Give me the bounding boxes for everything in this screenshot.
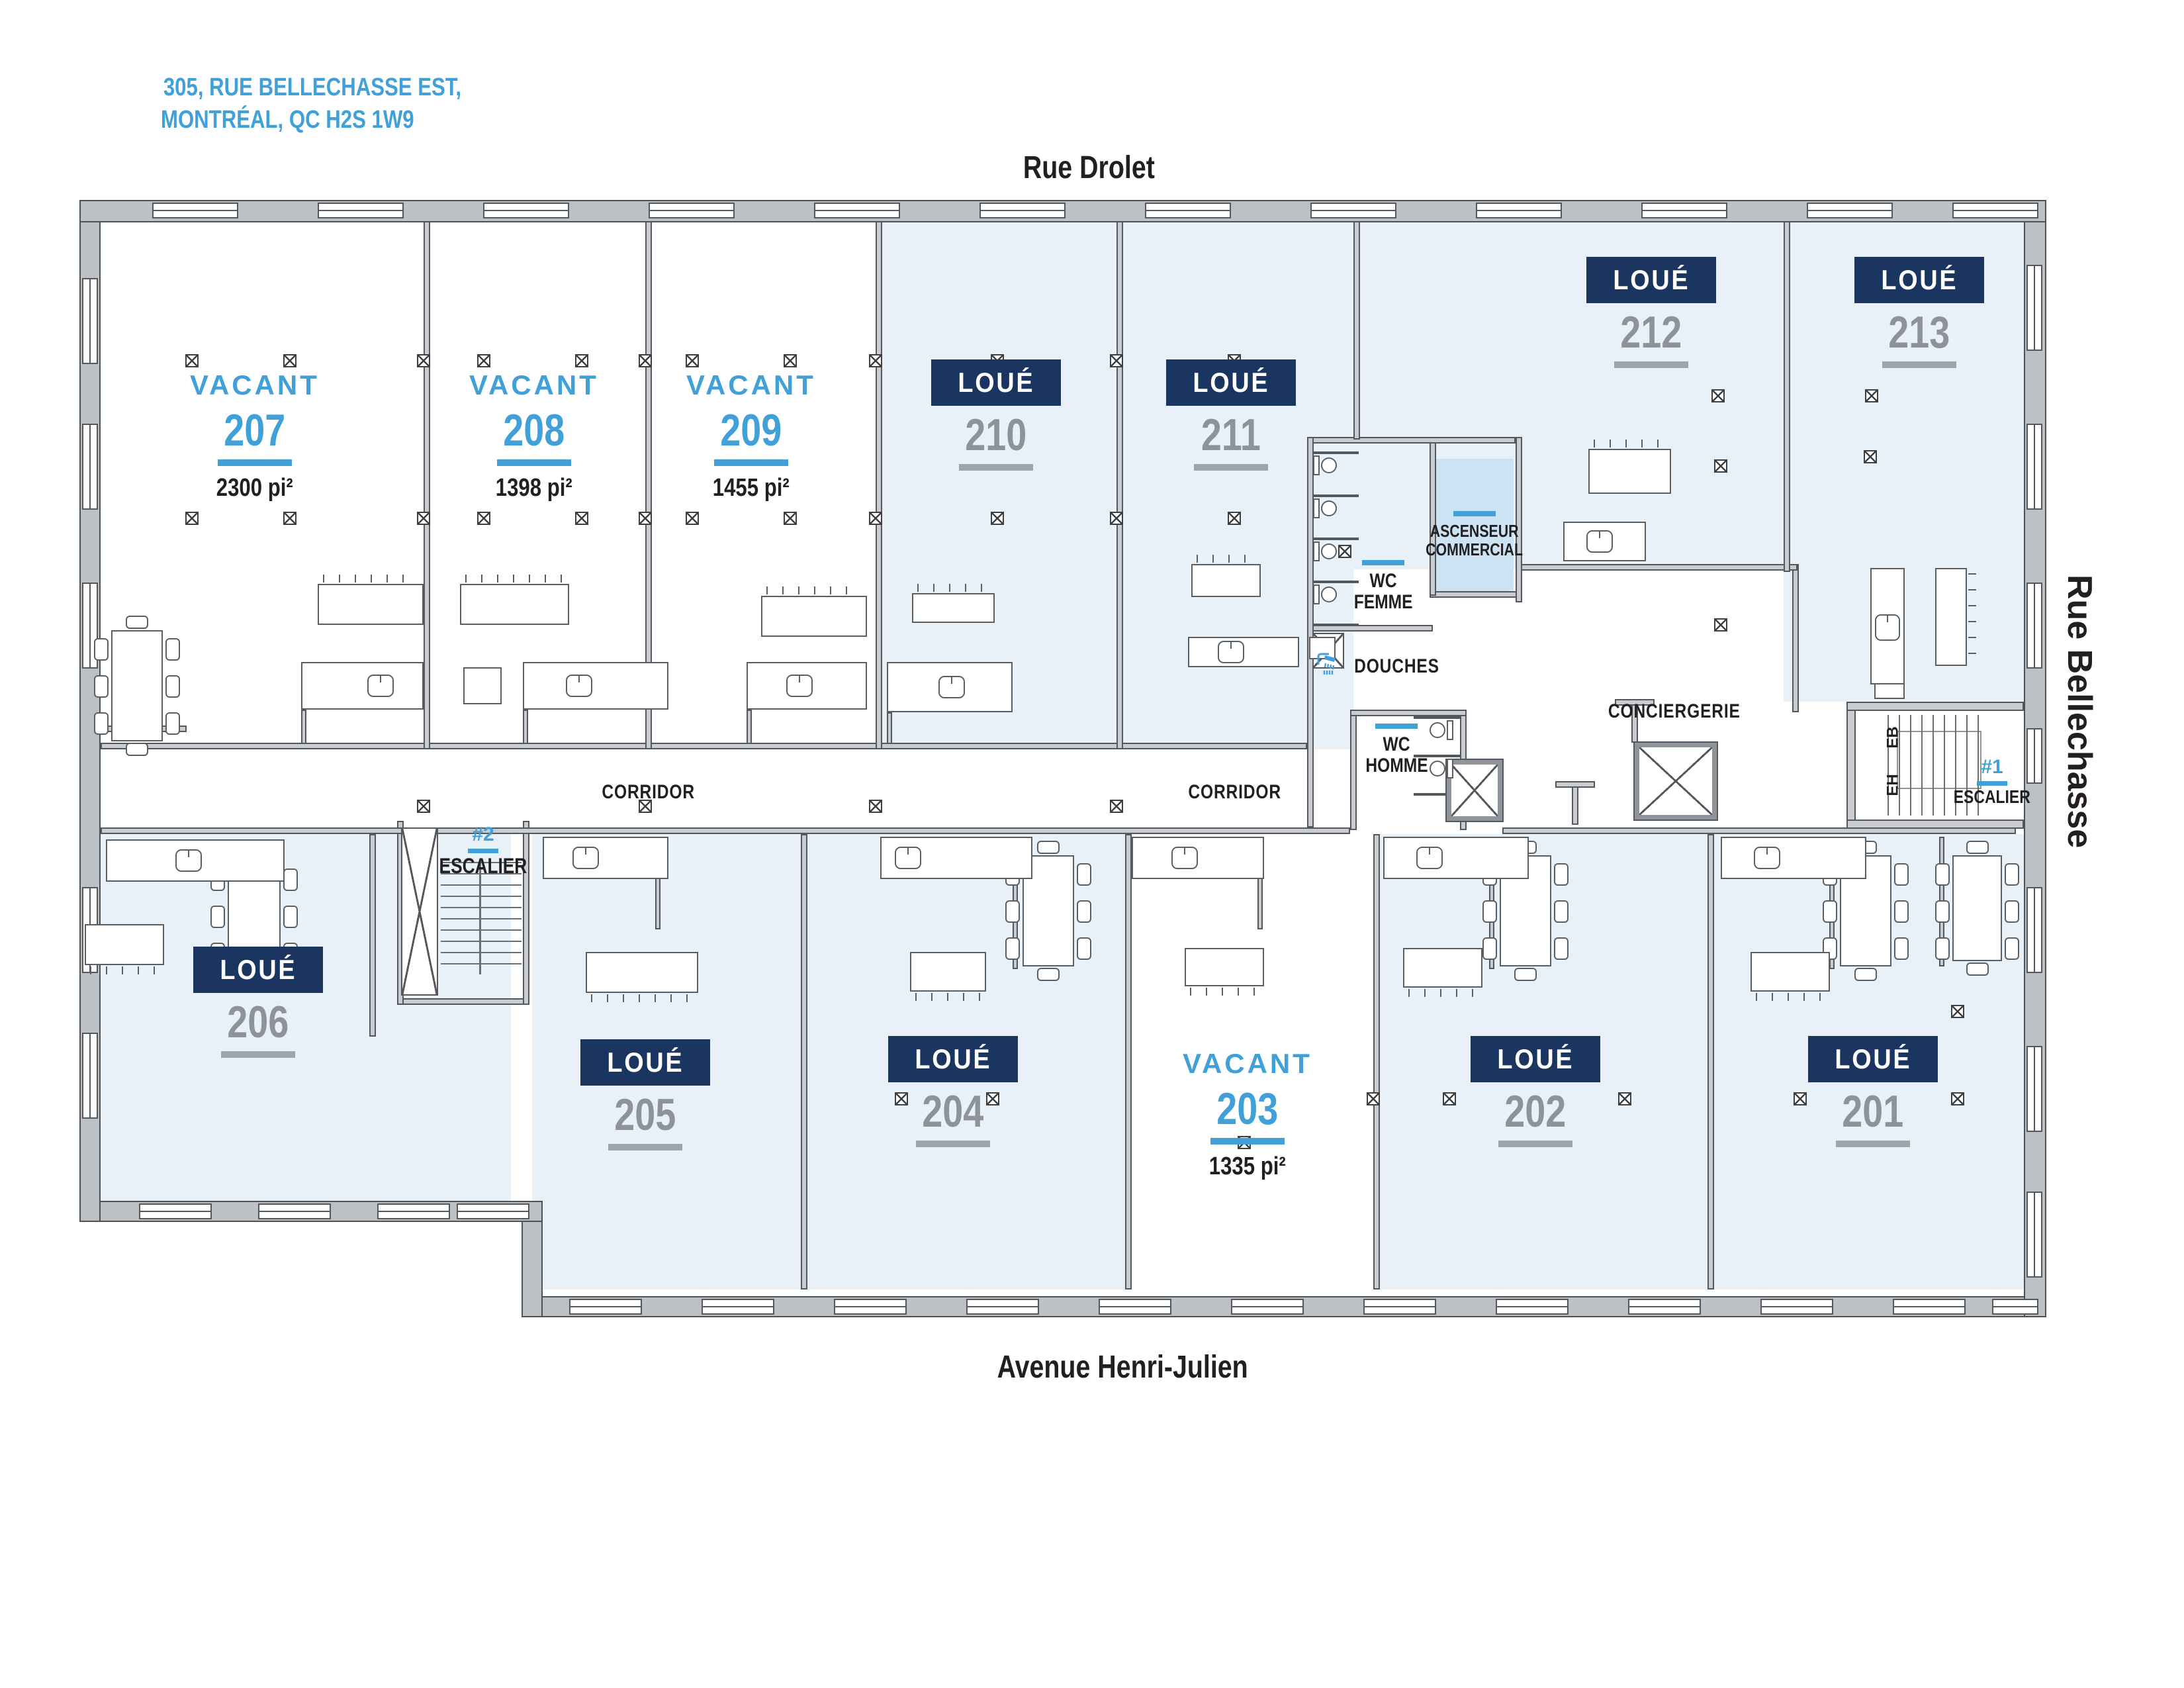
- unit-205-status-badge: LOUÉ: [580, 1039, 711, 1086]
- chair: [126, 616, 148, 629]
- kitchen-sink: [1171, 847, 1198, 869]
- unit-210-status-badge: LOUÉ: [931, 359, 1062, 406]
- window: [139, 1203, 212, 1219]
- interior-wall: [876, 221, 882, 749]
- island-stool-ticks: [1756, 993, 1825, 1001]
- chair: [94, 712, 109, 735]
- window: [483, 203, 569, 218]
- island-stool-ticks: [465, 575, 564, 583]
- kitchen-sink: [895, 847, 921, 869]
- window: [649, 203, 735, 218]
- island-stool-ticks: [915, 993, 981, 1001]
- unit-213-status-badge: LOUÉ: [1854, 257, 1985, 303]
- kitchen-counter: [523, 662, 668, 710]
- chair: [1894, 900, 1909, 923]
- chair: [1935, 900, 1950, 923]
- unit-208-underline: [497, 459, 571, 466]
- chair: [165, 675, 180, 698]
- unit-208-number: 208: [503, 408, 565, 453]
- kitchen-island: [460, 584, 569, 625]
- window: [979, 203, 1066, 218]
- wc-homme-label: WC HOMME: [1337, 724, 1456, 777]
- unit-label-202: LOUÉ 202: [1416, 1036, 1655, 1147]
- window: [82, 424, 98, 510]
- kitchen-sink: [566, 675, 592, 697]
- window: [814, 203, 900, 218]
- window: [1893, 1299, 1966, 1315]
- interior-wall: [397, 998, 529, 1005]
- window: [2026, 1046, 2042, 1132]
- window: [2026, 424, 2042, 510]
- unit-203-area: 1335 pi²: [1209, 1152, 1286, 1181]
- address-line2: MONTRÉAL, QC H2S 1W9: [161, 104, 414, 136]
- kitchen-sink: [1218, 641, 1244, 663]
- interior-wall: [1784, 221, 1790, 572]
- kitchen-island: [1588, 449, 1671, 494]
- window: [1760, 1299, 1833, 1315]
- chair: [1854, 968, 1877, 981]
- escalier-2-label: #2 ESCALIER: [424, 823, 543, 878]
- chair: [2005, 863, 2019, 886]
- unit-213-underline: [1882, 361, 1956, 368]
- window: [834, 1299, 907, 1315]
- unit-209-underline: [714, 459, 788, 466]
- window: [1641, 203, 1727, 218]
- freight-elevator: [1635, 743, 1717, 820]
- interior-wall: [1846, 702, 1856, 829]
- stair-2-treads: [441, 862, 522, 974]
- kitchen-island: [910, 952, 986, 992]
- unit-212-number: 212: [1620, 310, 1682, 355]
- window: [1952, 203, 2038, 218]
- chair: [1894, 863, 1909, 886]
- column-marker: [686, 512, 699, 525]
- escalier-1-label: #1 ESCALIER: [1936, 756, 2048, 807]
- unit-213-number: 213: [1888, 310, 1950, 355]
- chair: [2005, 900, 2019, 923]
- chair: [1077, 937, 1091, 960]
- interior-wall: [887, 712, 892, 747]
- column-marker: [1711, 389, 1725, 402]
- toilet: [1313, 541, 1338, 561]
- window: [966, 1299, 1039, 1315]
- unit-label-213: LOUÉ 213: [1800, 257, 2038, 368]
- ibeam-web: [1572, 786, 1578, 825]
- unit-207-area: 2300 pi²: [216, 474, 293, 502]
- window: [1628, 1299, 1701, 1315]
- column-marker: [283, 354, 296, 367]
- property-address: 305, RUE BELLECHASSE EST, MONTRÉAL, QC H…: [98, 71, 414, 137]
- chair: [1554, 937, 1569, 960]
- unit-205-number: 205: [614, 1092, 676, 1137]
- island-stool-ticks: [766, 586, 862, 594]
- window: [152, 203, 238, 218]
- column-marker: [1714, 459, 1727, 473]
- unit-204-number: 204: [922, 1089, 983, 1134]
- interior-wall: [1353, 221, 1360, 440]
- kitchen-island: [1751, 952, 1830, 992]
- kitchen-sink: [572, 847, 599, 869]
- chair: [1935, 937, 1950, 960]
- chair: [210, 906, 225, 928]
- unit-label-201: LOUÉ 201: [1754, 1036, 1992, 1147]
- kitchen-island: [1935, 568, 1967, 666]
- wc-femme-accent-bar: [1362, 560, 1404, 565]
- chair: [1894, 937, 1909, 960]
- island-stool-ticks: [1408, 989, 1477, 997]
- interior-wall: [523, 710, 528, 747]
- shower-icon: [1316, 651, 1342, 677]
- chair: [1554, 900, 1569, 923]
- interior-wall: [1502, 827, 2016, 834]
- column-marker: [417, 354, 430, 367]
- column-marker: [1367, 1092, 1380, 1105]
- window: [82, 278, 98, 364]
- ibeam-column: [1555, 781, 1595, 825]
- chair: [1077, 863, 1091, 886]
- chair: [126, 743, 148, 756]
- window: [1231, 1299, 1304, 1315]
- toilet-tank: [1313, 498, 1320, 518]
- chair: [1514, 968, 1537, 981]
- unit-206-status-badge: LOUÉ: [193, 947, 324, 993]
- unit-205-underline: [608, 1144, 682, 1150]
- address-line1: 305, RUE BELLECHASSE EST,: [163, 71, 461, 104]
- kitchen-sink: [938, 676, 965, 698]
- island-stool-ticks: [917, 584, 989, 592]
- unit-206-underline: [221, 1051, 295, 1058]
- column-marker: [991, 512, 1004, 525]
- window: [1145, 203, 1231, 218]
- island-stool-ticks: [1197, 555, 1255, 563]
- chair: [1005, 937, 1020, 960]
- column-marker: [869, 800, 882, 813]
- douches-label: DOUCHES: [1345, 655, 1449, 678]
- toilet-tank: [1313, 585, 1320, 604]
- unit-208-area: 1398 pi²: [496, 474, 572, 502]
- chair: [1554, 863, 1569, 886]
- interior-wall: [1350, 710, 1467, 716]
- column-marker: [417, 800, 430, 813]
- unit-206-number: 206: [227, 1000, 289, 1045]
- interior-wall: [1516, 564, 1797, 571]
- column-marker: [1864, 450, 1877, 463]
- corridor-label-right: CORRIDOR: [1116, 781, 1354, 804]
- stair-eh-label: EH: [1884, 774, 1903, 796]
- kitchen-island: [1403, 948, 1482, 988]
- column-marker: [185, 512, 199, 525]
- stair-eb-label: EB: [1884, 726, 1903, 748]
- chair: [2005, 937, 2019, 960]
- island-stool-ticks: [323, 575, 418, 583]
- unit-203-status: VACANT: [1128, 1048, 1367, 1080]
- kitchen-counter: [301, 662, 424, 710]
- interior-wall: [301, 710, 306, 747]
- chair: [1037, 841, 1060, 854]
- toilet-bowl: [1321, 500, 1337, 516]
- interior-wall: [1373, 834, 1380, 1289]
- chair: [1935, 863, 1950, 886]
- toilet: [1313, 498, 1338, 518]
- unit-212-status-badge: LOUÉ: [1586, 257, 1717, 303]
- kitchen-sink: [786, 675, 813, 697]
- window: [1099, 1299, 1171, 1315]
- ascenseur-accent-bar: [1453, 511, 1496, 516]
- window: [258, 1203, 331, 1219]
- chair: [1005, 900, 1020, 923]
- kitchen-counter: [1721, 837, 1866, 879]
- kitchen-sink: [1754, 847, 1780, 869]
- unit-209-area: 1455 pi²: [713, 474, 790, 502]
- kitchen-island: [761, 596, 867, 637]
- interior-wall: [101, 743, 1307, 749]
- island-stool-ticks: [1190, 988, 1259, 996]
- kitchen-island: [1185, 948, 1264, 986]
- wc-femme-label: WC FEMME: [1324, 560, 1443, 614]
- column-marker: [1865, 389, 1878, 402]
- column-marker: [1228, 512, 1241, 525]
- dining-table: [1952, 855, 2002, 961]
- appliance-box: [463, 667, 502, 704]
- window: [2026, 887, 2042, 973]
- column-marker: [477, 354, 490, 367]
- unit-212-underline: [1614, 361, 1688, 368]
- unit-210-number: 210: [965, 412, 1026, 457]
- ascenseur-commercial-label: ASCENSEUR COMMERCIAL: [1415, 511, 1534, 559]
- island-stool-ticks: [1594, 440, 1666, 447]
- chair: [165, 638, 180, 661]
- unit-label-208: VACANT 208 1398 pi²: [415, 369, 653, 502]
- window: [2026, 583, 2042, 669]
- unit-207-number: 207: [224, 408, 285, 453]
- window: [1476, 203, 1562, 218]
- kitchen-sink: [175, 849, 202, 872]
- wc-homme-accent-bar: [1375, 724, 1418, 729]
- kitchen-island: [586, 952, 698, 993]
- unit-203-number: 203: [1216, 1086, 1278, 1131]
- window: [1807, 203, 1893, 218]
- chair: [1077, 900, 1091, 923]
- street-label-bottom: Avenue Henri-Julien: [970, 1349, 1208, 1385]
- chair: [165, 712, 180, 735]
- column-marker: [784, 512, 797, 525]
- unit-204-status-badge: LOUÉ: [888, 1036, 1019, 1082]
- unit-203-underline: [1210, 1138, 1285, 1145]
- window: [1363, 1299, 1436, 1315]
- unit-label-204: LOUÉ 204: [834, 1036, 1072, 1147]
- window: [82, 1033, 98, 1119]
- interior-wall: [1307, 437, 1314, 827]
- unit-label-207: VACANT 207 2300 pi²: [136, 369, 374, 502]
- street-label-right: Rue Bellechasse: [2060, 575, 2099, 1051]
- unit-204-underline: [916, 1141, 990, 1147]
- unit-207-underline: [218, 459, 292, 466]
- kitchen-sink: [367, 675, 394, 697]
- island-stool-ticks: [591, 994, 693, 1002]
- chair: [1037, 968, 1060, 981]
- dining-table: [111, 630, 163, 741]
- unit-label-210: LOUÉ 210: [877, 359, 1115, 471]
- chair: [1482, 900, 1497, 923]
- escalier-1-accent-bar: [1977, 781, 2007, 786]
- chair: [283, 906, 298, 928]
- unit-label-203: VACANT 203 1335 pi²: [1128, 1048, 1367, 1181]
- unit-208-status: VACANT: [415, 369, 653, 401]
- chair: [283, 868, 298, 891]
- window: [702, 1299, 774, 1315]
- interior-wall: [1307, 625, 1433, 632]
- unit-209-number: 209: [720, 408, 782, 453]
- column-marker: [686, 354, 699, 367]
- toilet-bowl: [1321, 543, 1337, 559]
- chair: [94, 638, 109, 661]
- kitchen-sink: [1416, 847, 1443, 869]
- interior-wall: [1307, 494, 1359, 497]
- chair: [1966, 841, 1989, 854]
- window: [2026, 1192, 2042, 1278]
- unit-201-number: 201: [1842, 1089, 1903, 1134]
- unit-label-212: LOUÉ 212: [1532, 257, 1770, 368]
- interior-wall: [101, 827, 1350, 834]
- unit-201-underline: [1836, 1141, 1910, 1147]
- kitchen-counter: [543, 837, 668, 879]
- corridor-label-left: CORRIDOR: [529, 781, 768, 804]
- window: [1496, 1299, 1569, 1315]
- floor-plan: 305, RUE BELLECHASSE EST, MONTRÉAL, QC H…: [0, 0, 2184, 1688]
- column-marker: [1110, 512, 1123, 525]
- column-marker: [185, 354, 199, 367]
- unit-211-number: 211: [1201, 412, 1261, 457]
- window: [377, 1203, 450, 1219]
- column-marker: [1951, 1005, 1964, 1018]
- unit-201-status-badge: LOUÉ: [1808, 1036, 1938, 1082]
- chair: [1823, 900, 1837, 923]
- kitchen-island: [912, 593, 995, 623]
- unit-210-underline: [959, 464, 1033, 471]
- window: [1992, 1299, 2038, 1315]
- interior-wall: [1707, 834, 1714, 1289]
- interior-wall: [1307, 538, 1359, 540]
- column-marker: [417, 512, 430, 525]
- unit-202-underline: [1498, 1141, 1572, 1147]
- unit-label-209: VACANT 209 1455 pi²: [632, 369, 870, 502]
- window: [569, 1299, 642, 1315]
- chair: [1966, 962, 1989, 976]
- kitchen-island: [1191, 564, 1261, 597]
- interior-wall: [1414, 716, 1464, 719]
- chair: [94, 675, 109, 698]
- interior-wall: [1846, 702, 2024, 711]
- window: [318, 203, 404, 218]
- chair: [1482, 937, 1497, 960]
- unit-202-number: 202: [1504, 1089, 1566, 1134]
- unit-209-status: VACANT: [632, 369, 870, 401]
- column-marker: [639, 354, 652, 367]
- column-marker: [1338, 545, 1351, 558]
- interior-wall: [1792, 564, 1799, 712]
- unit-211-status-badge: LOUÉ: [1166, 359, 1297, 406]
- interior-wall: [1430, 591, 1520, 598]
- column-marker: [784, 354, 797, 367]
- interior-wall: [801, 834, 807, 1289]
- street-label-top: Rue Drolet: [970, 150, 1208, 186]
- column-marker: [1714, 618, 1727, 632]
- kitchen-counter: [1132, 837, 1264, 879]
- window: [457, 1203, 529, 1219]
- kitchen-sink: [1586, 530, 1613, 553]
- column-marker: [283, 512, 296, 525]
- interior-wall: [1116, 221, 1123, 749]
- window: [1310, 203, 1396, 218]
- column-marker: [869, 512, 882, 525]
- unit-211-underline: [1194, 464, 1268, 471]
- unit-label-211: LOUÉ 211: [1112, 359, 1350, 471]
- unit-label-206: LOUÉ 206: [139, 947, 377, 1058]
- conciergerie-label: CONCIERGERIE: [1555, 700, 1794, 723]
- unit-202-status-badge: LOUÉ: [1471, 1036, 1601, 1082]
- escalier-2-accent-bar: [468, 849, 498, 853]
- interior-wall: [747, 710, 752, 747]
- island-stool-ticks: [1968, 573, 1976, 661]
- kitchen-sink: [1875, 614, 1900, 641]
- unit-label-205: LOUÉ 205: [526, 1039, 764, 1150]
- column-marker: [575, 512, 588, 525]
- toilet-tank: [1313, 541, 1320, 561]
- column-marker: [575, 354, 588, 367]
- kitchen-island: [318, 584, 424, 625]
- unit-207-status: VACANT: [136, 369, 374, 401]
- column-marker: [639, 512, 652, 525]
- column-marker: [477, 512, 490, 525]
- kitchen-counter: [1383, 837, 1529, 879]
